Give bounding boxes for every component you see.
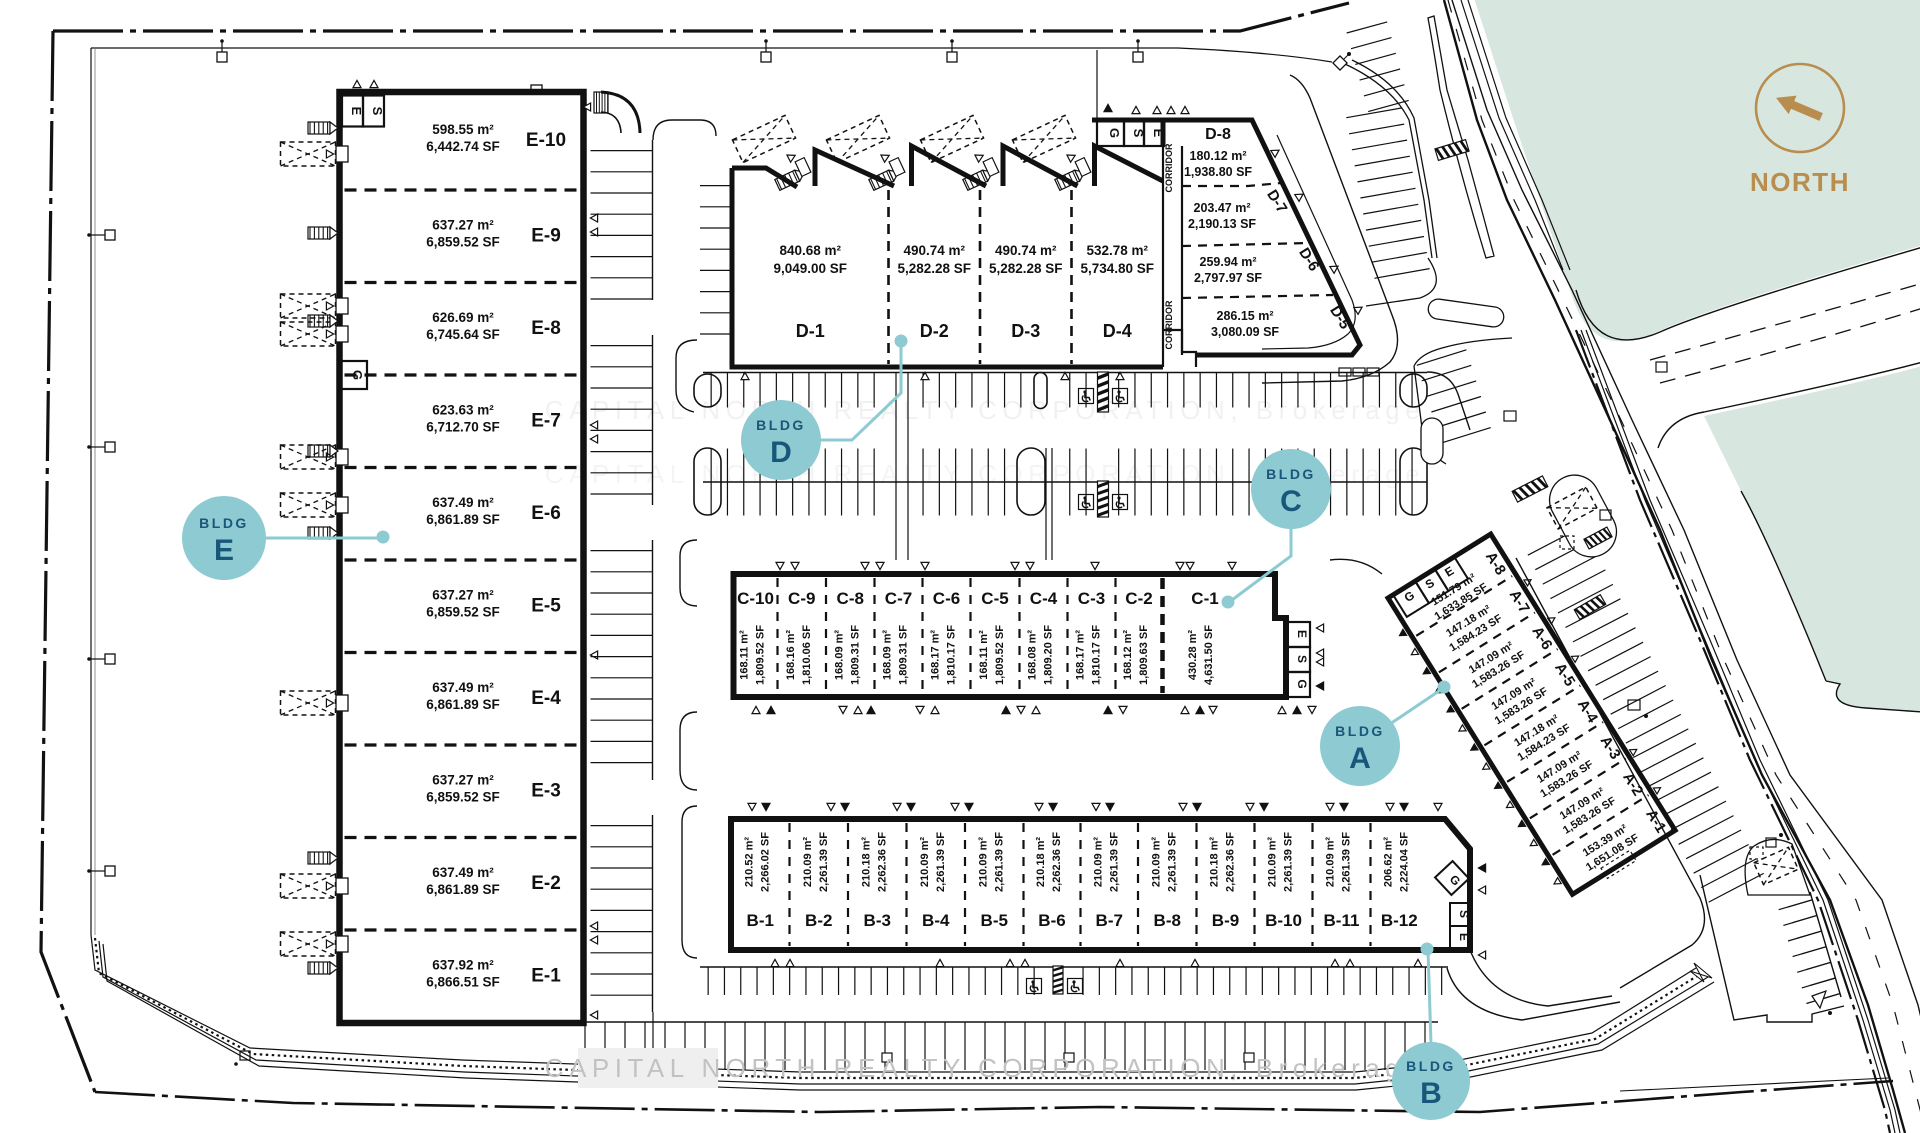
svg-text:B-11: B-11 — [1324, 911, 1360, 930]
svg-text:E-9: E-9 — [531, 225, 561, 246]
svg-text:168.16 m²: 168.16 m² — [785, 630, 797, 680]
svg-text:6,861.89 SF: 6,861.89 SF — [426, 512, 500, 527]
svg-text:2,261.39 SF: 2,261.39 SF — [1341, 832, 1353, 892]
svg-text:BLDG: BLDG — [199, 515, 249, 531]
svg-text:B-10: B-10 — [1265, 911, 1302, 930]
svg-text:2,261.39 SF: 2,261.39 SF — [818, 832, 830, 892]
svg-text:BLDG: BLDG — [1266, 466, 1316, 482]
svg-text:E-5: E-5 — [531, 595, 561, 616]
svg-text:637.27 m²: 637.27 m² — [432, 587, 494, 602]
svg-text:E: E — [349, 107, 364, 116]
svg-text:1,809.20 SF: 1,809.20 SF — [1043, 625, 1055, 685]
svg-text:2,797.97 SF: 2,797.97 SF — [1194, 271, 1262, 285]
svg-text:1,810.17 SF: 1,810.17 SF — [1091, 625, 1103, 685]
svg-text:430.28 m²: 430.28 m² — [1187, 630, 1199, 680]
svg-text:E-4: E-4 — [531, 688, 561, 709]
svg-text:210.18 m²: 210.18 m² — [1035, 837, 1047, 887]
svg-text:2,190.13 SF: 2,190.13 SF — [1188, 217, 1256, 231]
svg-text:637.92 m²: 637.92 m² — [432, 958, 494, 973]
svg-text:637.49 m²: 637.49 m² — [432, 680, 494, 695]
svg-text:B-7: B-7 — [1096, 911, 1123, 930]
svg-text:2,224.04 SF: 2,224.04 SF — [1398, 832, 1410, 892]
svg-text:D-8: D-8 — [1205, 126, 1231, 143]
svg-text:286.15 m²: 286.15 m² — [1217, 309, 1274, 323]
svg-text:D-6: D-6 — [1295, 245, 1322, 275]
svg-text:259.94 m²: 259.94 m² — [1200, 255, 1257, 269]
svg-text:1,938.80 SF: 1,938.80 SF — [1184, 165, 1252, 179]
svg-text:210.09 m²: 210.09 m² — [1267, 837, 1279, 887]
svg-text:2,262.36 SF: 2,262.36 SF — [1051, 832, 1063, 892]
svg-text:626.69 m²: 626.69 m² — [432, 310, 494, 325]
svg-text:C-2: C-2 — [1125, 589, 1152, 608]
svg-text:C-8: C-8 — [837, 589, 864, 608]
svg-text:1,810.06 SF: 1,810.06 SF — [801, 625, 813, 685]
svg-text:CAPITAL NORTH REALTY CORPORATI: CAPITAL NORTH REALTY CORPORATION, Broker… — [545, 395, 1425, 425]
svg-text:2,261.39 SF: 2,261.39 SF — [993, 832, 1005, 892]
svg-text:B: B — [1420, 1077, 1442, 1110]
svg-text:B-6: B-6 — [1038, 911, 1065, 930]
svg-text:C-6: C-6 — [933, 589, 960, 608]
svg-text:C-10: C-10 — [737, 589, 774, 608]
svg-text:C-3: C-3 — [1078, 589, 1105, 608]
svg-text:S: S — [1423, 576, 1437, 592]
svg-text:G: G — [1402, 588, 1417, 605]
svg-text:6,712.70 SF: 6,712.70 SF — [426, 419, 500, 434]
svg-text:1,809.52 SF: 1,809.52 SF — [994, 625, 1006, 685]
svg-text:C: C — [1280, 485, 1302, 518]
svg-text:BLDG: BLDG — [756, 417, 806, 433]
svg-text:9,049.00 SF: 9,049.00 SF — [773, 261, 847, 276]
svg-text:E-3: E-3 — [531, 780, 561, 801]
svg-text:B-5: B-5 — [981, 911, 1008, 930]
svg-text:D-2: D-2 — [920, 321, 949, 341]
svg-text:C-5: C-5 — [981, 589, 1008, 608]
svg-text:CORRIDOR: CORRIDOR — [1164, 300, 1174, 349]
svg-text:168.11 m²: 168.11 m² — [739, 630, 751, 680]
svg-text:5,282.28 SF: 5,282.28 SF — [897, 261, 971, 276]
svg-text:210.09 m²: 210.09 m² — [977, 837, 989, 887]
svg-text:6,861.89 SF: 6,861.89 SF — [426, 882, 500, 897]
svg-text:1,809.31 SF: 1,809.31 SF — [898, 625, 910, 685]
svg-text:E-6: E-6 — [531, 503, 561, 524]
svg-text:490.74 m²: 490.74 m² — [995, 243, 1057, 258]
svg-text:S: S — [1457, 910, 1471, 918]
svg-text:S: S — [370, 107, 385, 116]
svg-text:168.11 m²: 168.11 m² — [978, 630, 990, 680]
svg-text:G: G — [1107, 128, 1122, 138]
svg-text:B-3: B-3 — [864, 911, 891, 930]
svg-text:4,631.50 SF: 4,631.50 SF — [1203, 625, 1215, 685]
svg-text:637.27 m²: 637.27 m² — [432, 772, 494, 787]
svg-text:2,261.39 SF: 2,261.39 SF — [1108, 832, 1120, 892]
svg-text:C-9: C-9 — [788, 589, 815, 608]
svg-text:5,282.28 SF: 5,282.28 SF — [989, 261, 1063, 276]
svg-text:210.18 m²: 210.18 m² — [1209, 837, 1221, 887]
svg-text:637.49 m²: 637.49 m² — [432, 495, 494, 510]
svg-text:D-3: D-3 — [1011, 321, 1040, 341]
svg-text:E-2: E-2 — [531, 873, 561, 894]
svg-text:B-12: B-12 — [1381, 911, 1418, 930]
svg-text:2,262.36 SF: 2,262.36 SF — [876, 832, 888, 892]
svg-text:BLDG: BLDG — [1406, 1058, 1456, 1074]
svg-text:206.62 m²: 206.62 m² — [1382, 837, 1394, 887]
svg-text:623.63 m²: 623.63 m² — [432, 402, 494, 417]
svg-text:5,734.80 SF: 5,734.80 SF — [1080, 261, 1154, 276]
svg-text:210.09 m²: 210.09 m² — [1092, 837, 1104, 887]
svg-text:E-8: E-8 — [531, 318, 561, 339]
svg-text:G: G — [1295, 679, 1309, 688]
svg-text:2,266.02 SF: 2,266.02 SF — [759, 832, 771, 892]
svg-text:E-10: E-10 — [526, 130, 566, 151]
svg-text:C-7: C-7 — [885, 589, 912, 608]
svg-text:210.09 m²: 210.09 m² — [919, 837, 931, 887]
svg-text:6,859.52 SF: 6,859.52 SF — [426, 234, 500, 249]
svg-text:168.08 m²: 168.08 m² — [1027, 630, 1039, 680]
svg-text:1,809.52 SF: 1,809.52 SF — [755, 625, 767, 685]
svg-text:E: E — [1442, 564, 1456, 580]
svg-text:G: G — [350, 370, 365, 380]
svg-text:168.09 m²: 168.09 m² — [882, 630, 894, 680]
svg-text:598.55 m²: 598.55 m² — [432, 122, 494, 137]
svg-text:168.12 m²: 168.12 m² — [1122, 630, 1134, 680]
svg-text:210.09 m²: 210.09 m² — [1325, 837, 1337, 887]
svg-text:1,809.31 SF: 1,809.31 SF — [849, 625, 861, 685]
svg-text:210.09 m²: 210.09 m² — [802, 837, 814, 887]
svg-text:1,810.17 SF: 1,810.17 SF — [946, 625, 958, 685]
svg-text:D-1: D-1 — [796, 321, 825, 341]
svg-text:NORTH: NORTH — [1750, 167, 1850, 197]
svg-text:3,080.09 SF: 3,080.09 SF — [1211, 325, 1279, 339]
svg-text:6,442.74 SF: 6,442.74 SF — [426, 139, 500, 154]
svg-text:210.52 m²: 210.52 m² — [743, 837, 755, 887]
svg-text:B-2: B-2 — [805, 911, 832, 930]
svg-text:203.47 m²: 203.47 m² — [1194, 201, 1251, 215]
svg-text:C-4: C-4 — [1030, 589, 1058, 608]
svg-text:210.18 m²: 210.18 m² — [860, 837, 872, 887]
svg-text:A: A — [1349, 742, 1371, 775]
svg-text:210.09 m²: 210.09 m² — [1150, 837, 1162, 887]
svg-text:168.17 m²: 168.17 m² — [930, 630, 942, 680]
svg-text:C-1: C-1 — [1191, 589, 1218, 608]
svg-text:6,866.51 SF: 6,866.51 SF — [426, 975, 500, 990]
svg-text:637.27 m²: 637.27 m² — [432, 217, 494, 232]
svg-text:168.17 m²: 168.17 m² — [1075, 630, 1087, 680]
svg-text:1,809.63 SF: 1,809.63 SF — [1138, 625, 1150, 685]
svg-text:2,261.39 SF: 2,261.39 SF — [1283, 832, 1295, 892]
svg-text:D: D — [770, 436, 792, 469]
svg-text:BLDG: BLDG — [1335, 723, 1385, 739]
svg-text:168.09 m²: 168.09 m² — [833, 630, 845, 680]
svg-text:E: E — [1457, 933, 1471, 941]
svg-text:490.74 m²: 490.74 m² — [903, 243, 965, 258]
svg-text:E: E — [1295, 630, 1309, 638]
svg-text:2,262.36 SF: 2,262.36 SF — [1225, 832, 1237, 892]
svg-text:B-1: B-1 — [747, 911, 774, 930]
svg-text:D-4: D-4 — [1103, 321, 1132, 341]
svg-text:2,261.39 SF: 2,261.39 SF — [935, 832, 947, 892]
svg-text:B-4: B-4 — [922, 911, 950, 930]
svg-text:2,261.39 SF: 2,261.39 SF — [1166, 832, 1178, 892]
svg-text:B-9: B-9 — [1212, 911, 1239, 930]
svg-text:840.68 m²: 840.68 m² — [779, 243, 841, 258]
svg-text:180.12 m²: 180.12 m² — [1190, 149, 1247, 163]
svg-text:E-1: E-1 — [531, 966, 561, 987]
svg-text:532.78 m²: 532.78 m² — [1086, 243, 1148, 258]
svg-text:CAPITAL NORTH REALTY CORPORATI: CAPITAL NORTH REALTY CORPORATION, Broker… — [545, 1053, 1425, 1083]
svg-text:6,745.64 SF: 6,745.64 SF — [426, 327, 500, 342]
svg-text:CORRIDOR: CORRIDOR — [1164, 143, 1174, 192]
svg-text:E: E — [214, 534, 234, 567]
svg-text:6,861.89 SF: 6,861.89 SF — [426, 697, 500, 712]
svg-text:637.49 m²: 637.49 m² — [432, 865, 494, 880]
svg-text:6,859.52 SF: 6,859.52 SF — [426, 789, 500, 804]
svg-text:B-8: B-8 — [1154, 911, 1181, 930]
svg-text:6,859.52 SF: 6,859.52 SF — [426, 604, 500, 619]
svg-text:S: S — [1295, 655, 1309, 663]
